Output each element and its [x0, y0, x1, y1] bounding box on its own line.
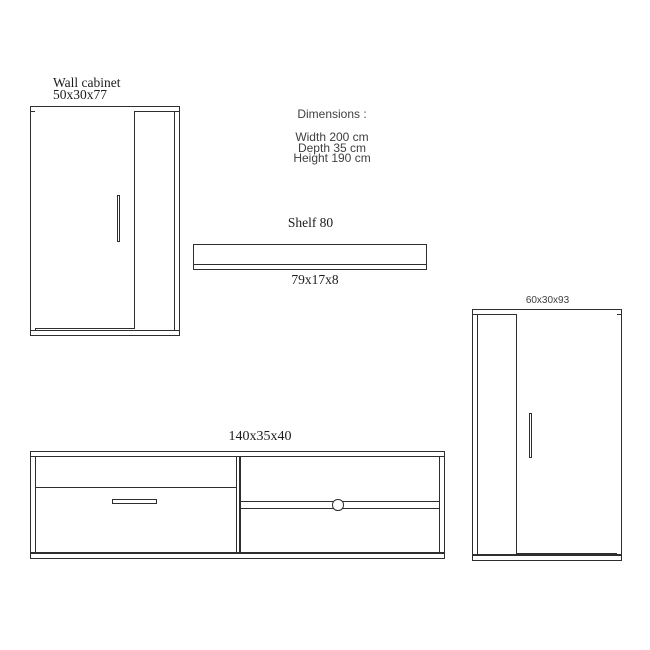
wall-cabinet-drawing	[30, 106, 181, 336]
wall-cabinet-size: 50x30x77	[53, 89, 121, 101]
tall-cabinet-size: 60x30x93	[487, 295, 608, 306]
shelf-size: 79x17x8	[255, 274, 375, 286]
tv-unit-top-panel-line	[31, 456, 444, 457]
wall-cabinet-right-panel-line	[174, 111, 175, 331]
tv-drawer-handle	[112, 499, 157, 505]
tv-unit-size: 140x35x40	[200, 431, 320, 443]
dimensions-heading: Dimensions :	[262, 108, 402, 120]
tv-unit-right-panel-line	[439, 456, 440, 554]
shelf-title: Shelf 80	[250, 217, 371, 229]
shelf-drawing	[193, 244, 427, 270]
wall-cabinet-door-handle	[117, 195, 121, 242]
tv-unit-divider-line-right	[239, 456, 240, 554]
furniture-technical-drawing: Wall cabinet 50x30x77 Dimensions : Width…	[0, 0, 650, 650]
tv-unit-drawing	[30, 451, 445, 559]
tv-unit-divider-line-left	[236, 456, 237, 554]
tv-drawer-top-line	[35, 487, 236, 489]
tv-unit-left-panel-line	[35, 456, 36, 554]
dimensions-lines: Width 200 cm Depth 35 cm Height 190 cm	[262, 132, 402, 164]
shelf-bottom-edge-line	[194, 264, 426, 265]
tall-cabinet-drawing	[472, 309, 623, 561]
tv-knob-circle	[332, 499, 344, 511]
tall-cabinet-left-panel-line	[477, 314, 478, 556]
tall-cabinet-bottom-panel-line	[473, 554, 622, 555]
dimension-height: Height 190 cm	[262, 153, 402, 164]
tv-unit-bottom-panel-line	[31, 552, 444, 553]
tall-cabinet-door-handle	[529, 413, 533, 458]
wall-cabinet-bottom-panel-line	[31, 330, 180, 331]
wall-cabinet-label: Wall cabinet 50x30x77	[53, 77, 121, 101]
